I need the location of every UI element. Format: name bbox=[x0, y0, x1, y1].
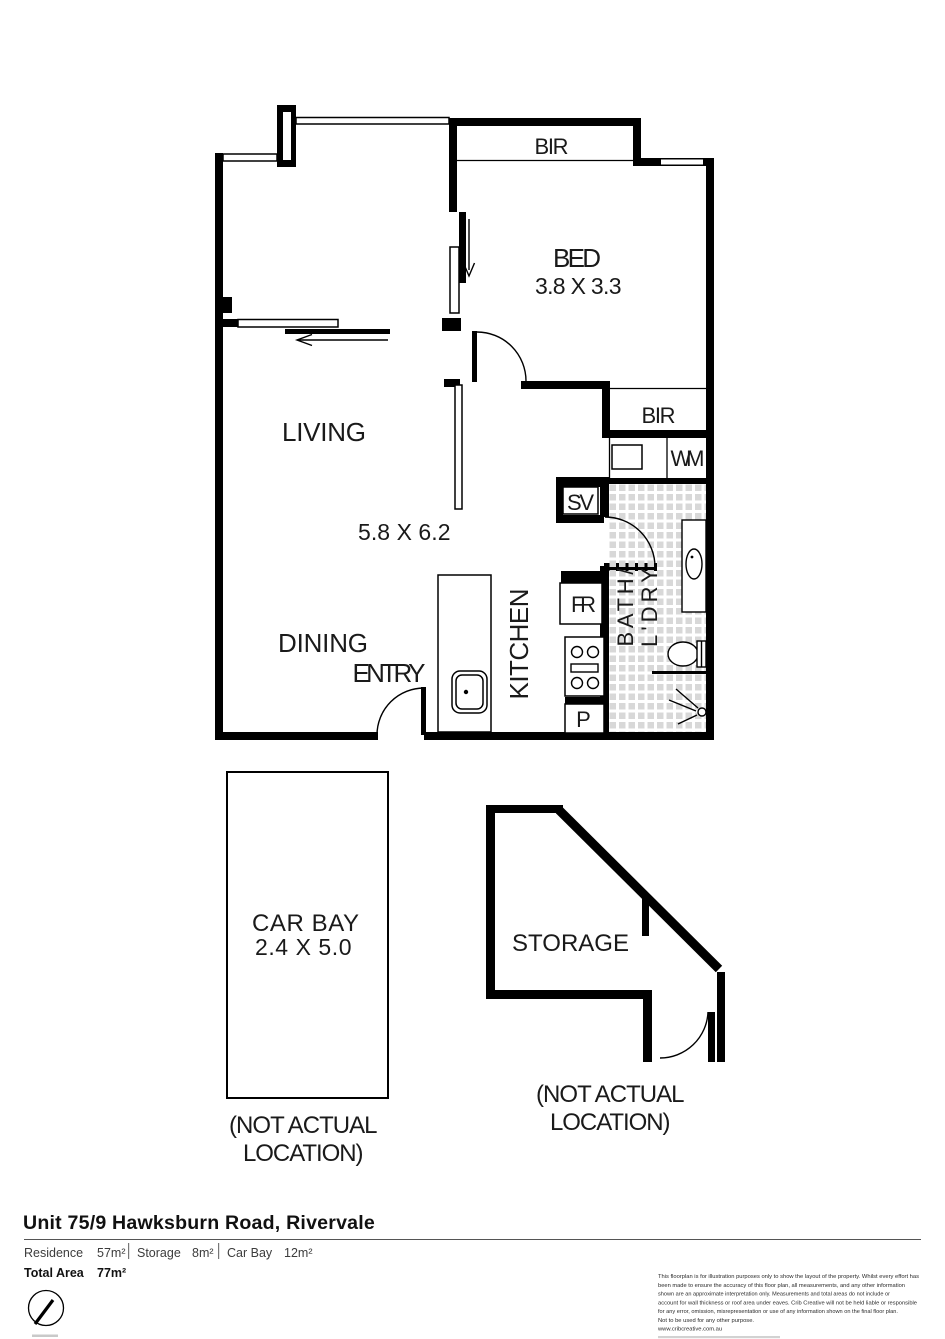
sliding-door-fixed-panel bbox=[238, 320, 338, 328]
sliding-door-panel bbox=[285, 329, 390, 334]
label-bed-dims: 3.8 X 3.3 bbox=[535, 273, 623, 299]
window-top-right bbox=[661, 160, 703, 165]
label-bed: BED bbox=[553, 243, 603, 273]
label-living: LIVING bbox=[282, 417, 368, 447]
label-bir-bed: BIR bbox=[642, 403, 677, 428]
bed-door-arc bbox=[477, 332, 526, 381]
page-title: Unit 75/9 Hawksburn Road, Rivervale bbox=[23, 1212, 375, 1234]
compass bbox=[29, 1291, 64, 1338]
window-top-left bbox=[296, 118, 449, 125]
label-fr: FR bbox=[571, 592, 597, 617]
floorplan-page: BIR BED 3.8 X 3.3 LIVING 5.8 X 6.2 DININ… bbox=[0, 0, 945, 1339]
sink-tap bbox=[464, 690, 468, 694]
storage-wall-right bbox=[717, 972, 725, 1062]
label-entry: ENTRY bbox=[353, 658, 428, 688]
label-bath-line2: L'DRY bbox=[637, 567, 662, 647]
label-wm: WM bbox=[671, 446, 706, 471]
burner bbox=[588, 647, 599, 658]
label-storage: STORAGE bbox=[512, 930, 632, 957]
wall-sv-bottom bbox=[556, 515, 604, 523]
carbay-note-line2: LOCATION) bbox=[243, 1140, 365, 1167]
storage-wall-top bbox=[486, 805, 563, 813]
burner bbox=[588, 678, 599, 689]
storage-note-line1: (NOT ACTUAL bbox=[536, 1081, 686, 1108]
pillar-window-slot bbox=[283, 112, 291, 160]
sink-inner bbox=[456, 675, 483, 709]
disclaimer-line: account for wall thickness or roof area … bbox=[658, 1300, 917, 1306]
area-separator bbox=[128, 1243, 129, 1259]
label-kitchen: KITCHEN bbox=[504, 587, 534, 700]
area-label-residence: Residence bbox=[24, 1246, 83, 1260]
storage-door-jamb-left bbox=[643, 990, 652, 1062]
disclaimer: This floorplan is for illustration purpo… bbox=[657, 1274, 919, 1338]
label-sv: SV bbox=[567, 490, 595, 515]
cutoff-text-fragment bbox=[658, 1336, 780, 1338]
basin bbox=[686, 549, 702, 579]
label-pantry: P bbox=[576, 707, 592, 732]
wall-bath-upper bbox=[600, 477, 609, 517]
cutoff-text-fragment bbox=[32, 1335, 58, 1338]
wall-bir2-bottom bbox=[602, 430, 713, 438]
bed-slider-pocket bbox=[459, 212, 466, 283]
storage-door-leaf bbox=[708, 1012, 715, 1062]
burner bbox=[572, 678, 583, 689]
wall-bir2-left bbox=[602, 381, 610, 437]
disclaimer-line: shown are an approximate interpretation … bbox=[658, 1292, 890, 1298]
area-summary: Residence 57m² Storage 8m² Car Bay 12m² … bbox=[24, 1243, 312, 1280]
label-bath-line1: BATH/ bbox=[613, 568, 638, 647]
area-label-storage: Storage bbox=[137, 1246, 181, 1260]
wall-bed-bottom bbox=[521, 381, 610, 389]
area-value-residence: 57m² bbox=[97, 1246, 125, 1260]
total-area-value: 77m² bbox=[97, 1266, 126, 1280]
label-carbay: CAR BAY bbox=[252, 910, 362, 937]
shower-head bbox=[698, 708, 706, 716]
disclaimer-line: Not to be used for any other purpose. bbox=[658, 1318, 754, 1324]
area-value-storage: 8m² bbox=[192, 1246, 214, 1260]
storage-note-line2: LOCATION) bbox=[550, 1109, 672, 1136]
disclaimer-line: been made to ensure the accuracy of this… bbox=[658, 1283, 905, 1289]
disclaimer-line: This floorplan is for illustration purpo… bbox=[658, 1274, 919, 1280]
toilet-bowl bbox=[668, 642, 698, 666]
bed-slider-panel bbox=[450, 247, 459, 313]
storage-wall-left bbox=[486, 805, 495, 998]
label-bir-top: BIR bbox=[535, 134, 570, 159]
label-living-dims: 5.8 X 6.2 bbox=[358, 519, 452, 545]
wall-left-notch bbox=[215, 297, 232, 313]
entry-door-arc bbox=[377, 688, 424, 735]
burner bbox=[572, 647, 583, 658]
storage-wall-bottom bbox=[486, 990, 652, 999]
disclaimer-line: for any error, omission, misrepresentati… bbox=[658, 1309, 898, 1315]
bed-door-leaf bbox=[472, 331, 477, 382]
area-label-carbay: Car Bay bbox=[227, 1246, 273, 1260]
stove-panel bbox=[571, 664, 598, 672]
carbay-note-line1: (NOT ACTUAL bbox=[229, 1112, 379, 1139]
basin-tap bbox=[691, 556, 694, 559]
wall-above-fridge bbox=[561, 571, 604, 583]
label-dining: DINING bbox=[278, 628, 370, 658]
wall-right bbox=[706, 158, 714, 740]
area-separator bbox=[218, 1243, 219, 1259]
area-value-carbay: 12m² bbox=[284, 1246, 312, 1260]
fin-wall bbox=[455, 385, 462, 509]
wall-l-corner bbox=[442, 318, 461, 331]
wall-sv-top bbox=[556, 477, 604, 487]
carbay-group: CAR BAY 2.4 X 5.0 (NOT ACTUAL LOCATION) bbox=[227, 772, 388, 1167]
wall-top bbox=[449, 118, 641, 126]
storage-group: STORAGE (NOT ACTUAL LOCATION) bbox=[486, 805, 725, 1136]
total-area-label: Total Area bbox=[24, 1266, 85, 1280]
wall-above-pantry bbox=[565, 697, 604, 704]
label-carbay-dims: 2.4 X 5.0 bbox=[255, 934, 353, 960]
window-left bbox=[223, 154, 277, 161]
wall-bottom-left bbox=[215, 732, 378, 740]
wall-bed-left bbox=[449, 118, 457, 212]
wall-slider-stub bbox=[215, 319, 239, 327]
wall-left bbox=[215, 153, 223, 740]
footer-group: Unit 75/9 Hawksburn Road, Rivervale Resi… bbox=[23, 1212, 921, 1338]
floorplan-drawing: BIR BED 3.8 X 3.3 LIVING 5.8 X 6.2 DININ… bbox=[0, 0, 945, 1339]
laundry-trough bbox=[612, 445, 642, 469]
disclaimer-website: www.cribcreative.com.au bbox=[657, 1327, 722, 1333]
storage-door-arc bbox=[660, 1012, 708, 1058]
entry-door-leaf bbox=[421, 687, 426, 735]
